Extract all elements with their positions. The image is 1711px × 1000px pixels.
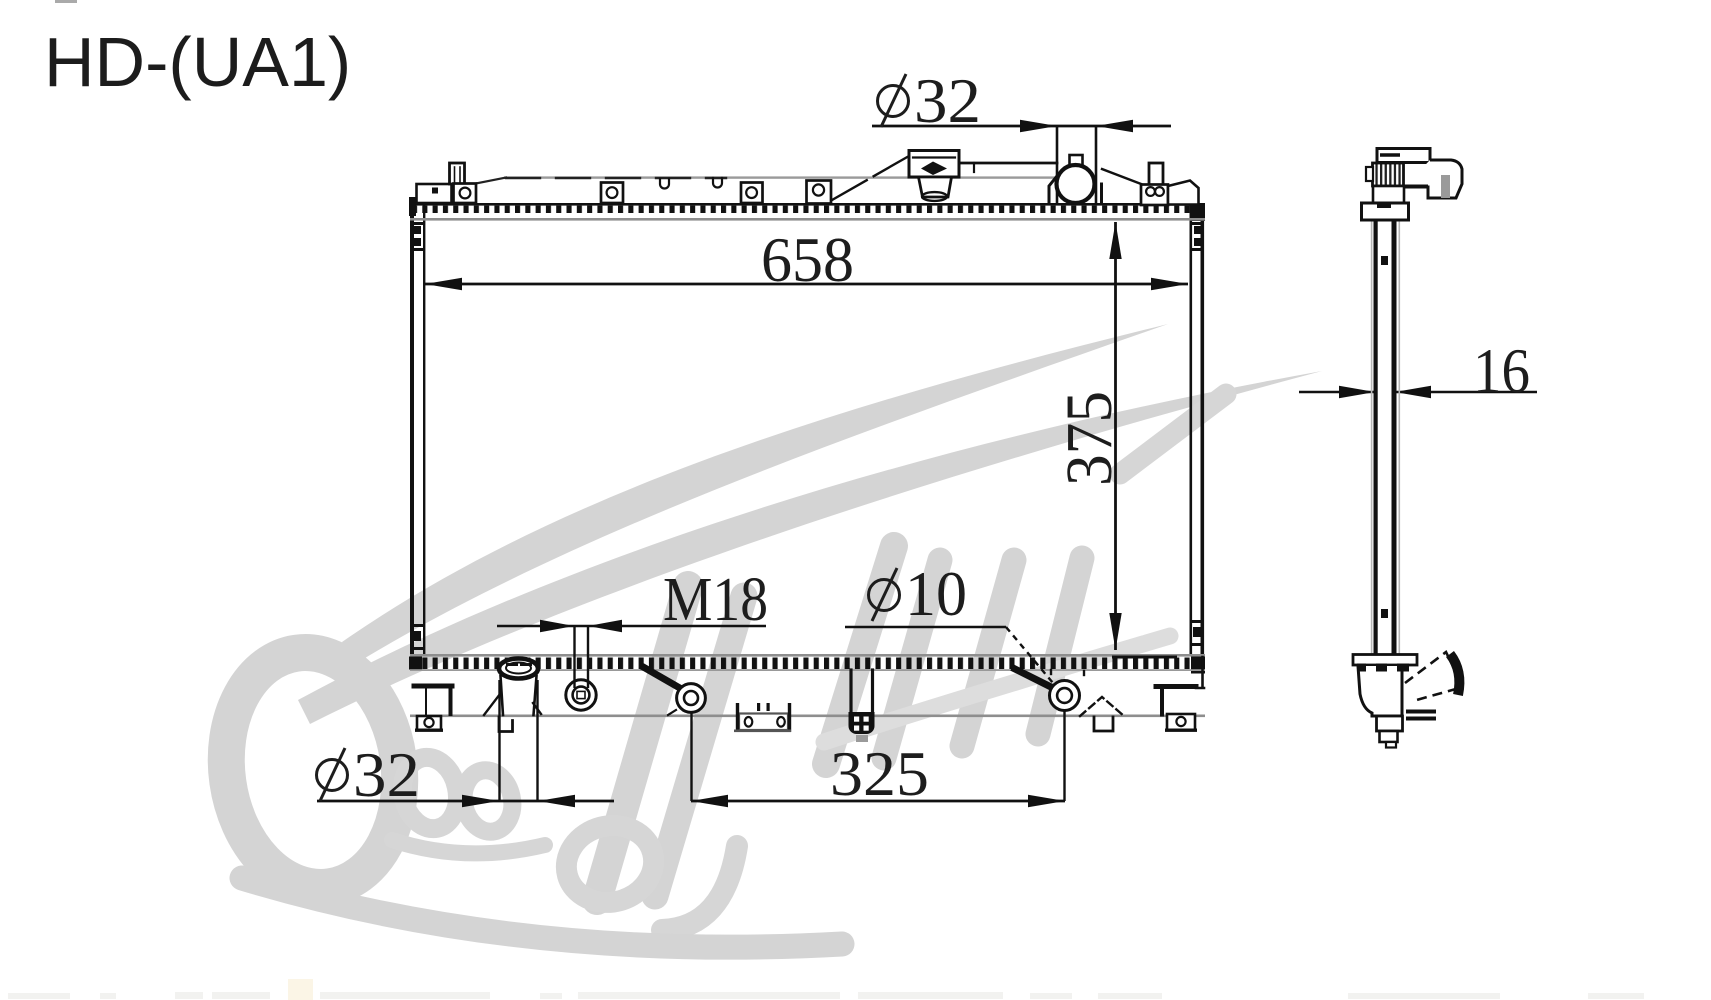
svg-text:325: 325 [830,738,929,809]
svg-text:32: 32 [353,739,420,810]
svg-text:M18: M18 [663,566,768,634]
svg-text:32: 32 [914,65,981,136]
svg-text:375: 375 [1053,391,1126,486]
svg-text:HD-(UA1): HD-(UA1) [44,23,351,101]
svg-text:658: 658 [761,224,854,295]
svg-text:10: 10 [905,558,967,629]
svg-text:16: 16 [1473,335,1530,406]
